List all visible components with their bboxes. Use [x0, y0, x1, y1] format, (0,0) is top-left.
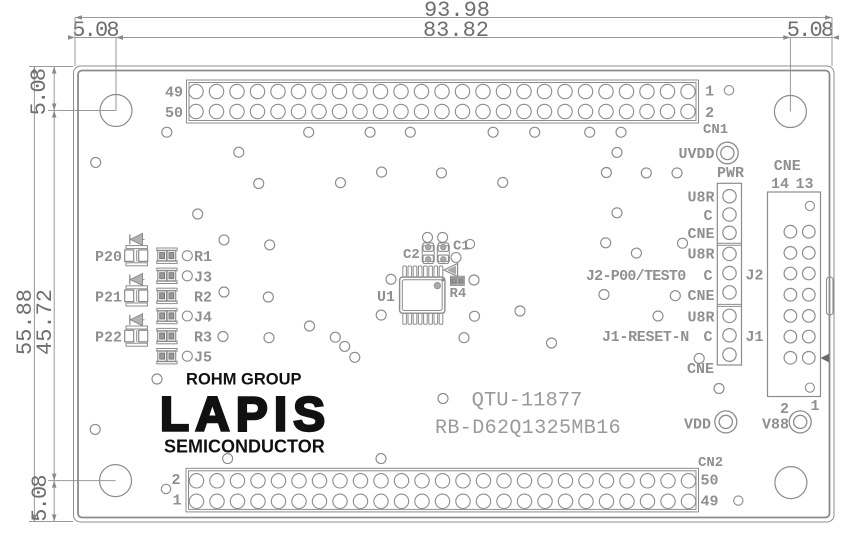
svg-text:CN2: CN2 [698, 455, 723, 471]
svg-text:50: 50 [701, 473, 719, 490]
svg-text:QTU-11877: QTU-11877 [472, 390, 583, 413]
svg-text:R3: R3 [194, 330, 212, 347]
svg-text:J2: J2 [746, 268, 764, 285]
svg-text:SEMICONDUCTOR: SEMICONDUCTOR [164, 437, 325, 457]
svg-text:5.08: 5.08 [27, 69, 52, 115]
svg-text:V88: V88 [762, 417, 789, 434]
svg-text:1: 1 [705, 84, 714, 101]
svg-text:P21: P21 [95, 289, 122, 306]
svg-text:5.08: 5.08 [72, 18, 118, 43]
svg-text:49: 49 [165, 85, 183, 102]
svg-text:C2: C2 [403, 247, 420, 263]
svg-text:J3: J3 [194, 269, 212, 286]
svg-text:50: 50 [165, 105, 183, 122]
svg-text:J1: J1 [746, 329, 764, 346]
svg-text:14: 14 [771, 176, 789, 193]
svg-text:5.08: 5.08 [787, 18, 833, 43]
svg-text:13: 13 [795, 176, 813, 193]
svg-text:R2: R2 [194, 289, 212, 306]
svg-text:83.82: 83.82 [423, 18, 489, 43]
svg-text:U1: U1 [377, 289, 395, 306]
svg-text:RB-D62Q1325MB16: RB-D62Q1325MB16 [435, 417, 621, 440]
svg-text:U8R: U8R [687, 309, 714, 326]
svg-text:UVDD: UVDD [678, 146, 714, 163]
svg-text:J5: J5 [194, 350, 212, 367]
svg-text:ROHM GROUP: ROHM GROUP [186, 371, 302, 389]
svg-text:2: 2 [780, 401, 789, 418]
svg-text:C: C [703, 268, 712, 285]
svg-text:J4: J4 [194, 310, 212, 327]
svg-text:49: 49 [701, 494, 719, 511]
svg-text:U8R: U8R [687, 247, 714, 264]
svg-text:2: 2 [705, 105, 714, 122]
svg-text:1: 1 [172, 493, 181, 510]
svg-text:J1-RESET-N: J1-RESET-N [602, 329, 689, 346]
svg-text:1: 1 [810, 398, 819, 415]
svg-text:CNE: CNE [687, 288, 714, 305]
svg-text:LAPIS: LAPIS [160, 388, 331, 441]
svg-text:R1: R1 [194, 249, 212, 266]
svg-text:5.08: 5.08 [28, 476, 53, 522]
svg-text:U8R: U8R [687, 190, 714, 207]
svg-text:CNE: CNE [687, 226, 714, 243]
svg-text:CN1: CN1 [703, 122, 728, 138]
svg-text:P20: P20 [95, 249, 122, 266]
svg-text:J2-P00/TEST0: J2-P00/TEST0 [586, 268, 686, 285]
svg-text:C: C [703, 208, 712, 225]
svg-text:CNE: CNE [774, 158, 801, 175]
svg-text:R4: R4 [450, 286, 467, 302]
svg-text:VDD: VDD [684, 417, 711, 434]
svg-text:C: C [703, 329, 712, 346]
svg-text:2: 2 [171, 472, 180, 489]
svg-text:PWR: PWR [717, 165, 744, 182]
svg-text:P22: P22 [95, 330, 122, 347]
